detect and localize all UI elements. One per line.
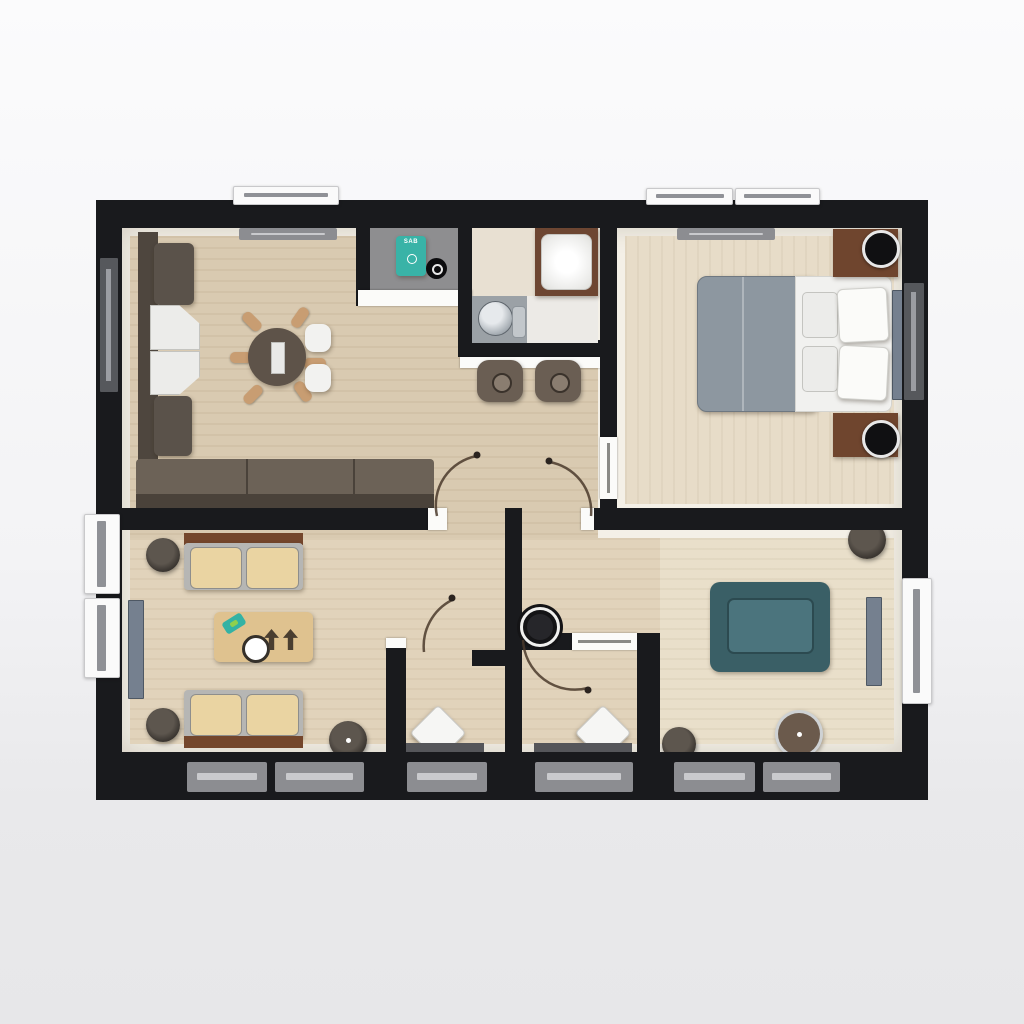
- duvet-fold: [742, 277, 744, 411]
- sofa-cushion-top: [154, 243, 194, 305]
- bottom-sill-2: [275, 762, 364, 792]
- bedroom-wall-upper: [600, 200, 617, 437]
- teal-armchair: [710, 582, 830, 672]
- coffee-table-plate: [242, 635, 270, 663]
- window-right-bedroom: [904, 283, 924, 400]
- stool-center-dot: [346, 738, 351, 743]
- bench-bottom-cushion-1: [190, 694, 242, 736]
- bottom-sill-1: [187, 762, 267, 792]
- closet-left-wall: [386, 648, 406, 752]
- sitting-room-left-wall: [637, 633, 660, 752]
- table-runner: [271, 342, 285, 374]
- shower-tray: [541, 234, 592, 290]
- sofa-seam-2: [353, 459, 355, 497]
- window-left-lounge-1: [84, 514, 120, 594]
- bench-bottom-cushion-2: [246, 694, 299, 736]
- window-top-living: [233, 186, 339, 205]
- bed-pillow-inner-2: [802, 346, 838, 392]
- coffee-table: [214, 612, 313, 662]
- bedroom-window-sill-top: [677, 228, 775, 240]
- lamp-top: [862, 230, 900, 268]
- bench-bottom-backrest: [184, 736, 303, 748]
- toilet-tank: [512, 306, 526, 338]
- bench-top-cushion-1: [190, 547, 242, 589]
- washing-machine-label: SAB: [396, 239, 426, 245]
- wall-basin: [520, 607, 560, 647]
- teal-armchair-cushion: [727, 598, 814, 654]
- bedroom-door-leaf: [607, 443, 610, 493]
- door-jamb-left: [428, 508, 447, 530]
- page: { "document": { "type": "3d-floor-plan-t…: [0, 0, 1024, 1024]
- sofa-seam-1: [246, 459, 248, 497]
- door-jamb-right: [581, 508, 594, 530]
- dining-chair-white-2: [305, 364, 331, 392]
- bar-stool-2: [535, 360, 581, 402]
- lamp-bottom: [862, 420, 900, 458]
- arrow-decor-2: [283, 629, 298, 650]
- bed-pillow-2: [837, 345, 890, 402]
- sofa-cushion-lower: [154, 396, 192, 456]
- shower: [535, 228, 598, 296]
- bottom-sill-6: [763, 762, 840, 792]
- washing-machine: SAB: [396, 236, 426, 276]
- bar-stool-1: [477, 360, 523, 402]
- mid-wall-left: [96, 508, 428, 530]
- living-window-sill: [239, 228, 337, 240]
- toilet: [478, 301, 513, 336]
- window-right-sitting: [902, 578, 932, 704]
- lounge-radiator-panel: [128, 600, 144, 699]
- bottom-sill-4: [535, 762, 633, 792]
- closet-left-top-wall: [472, 650, 522, 666]
- bedroom-door: [600, 437, 617, 499]
- window-top-bedroom-1: [646, 188, 733, 205]
- sitting-radiator-panel: [866, 597, 882, 686]
- bench-top-cushion-2: [246, 547, 299, 589]
- dining-chair-white-1: [305, 324, 331, 352]
- window-left-living: [100, 258, 118, 392]
- pot-highlight: [432, 264, 443, 275]
- washing-machine-door-icon: [407, 254, 417, 264]
- mid-wall-right: [594, 508, 902, 530]
- bed-pillow-inner-1: [802, 292, 838, 338]
- sitting-room-door: [572, 633, 637, 650]
- pot: [426, 258, 447, 279]
- pedestal-center-dot: [797, 732, 802, 737]
- side-stool-bottom: [146, 708, 180, 742]
- pedestal-table-ring: [775, 710, 823, 758]
- floor-plan: SAB: [96, 200, 928, 800]
- bottom-sill-5: [674, 762, 755, 792]
- utility-shelf: [358, 290, 472, 306]
- bedroom-wall-lower: [600, 499, 617, 530]
- bathroom-counter-white: [527, 296, 598, 343]
- window-top-bedroom-2: [735, 188, 820, 205]
- side-stool-top: [146, 538, 180, 572]
- bottom-sill-3: [407, 762, 487, 792]
- window-left-lounge-2: [84, 598, 120, 678]
- wall-basin-bowl: [527, 614, 553, 640]
- bed-pillow-1: [837, 287, 890, 344]
- sitting-room-door-leaf: [578, 640, 631, 643]
- sofa-seat-horizontal: [136, 459, 434, 497]
